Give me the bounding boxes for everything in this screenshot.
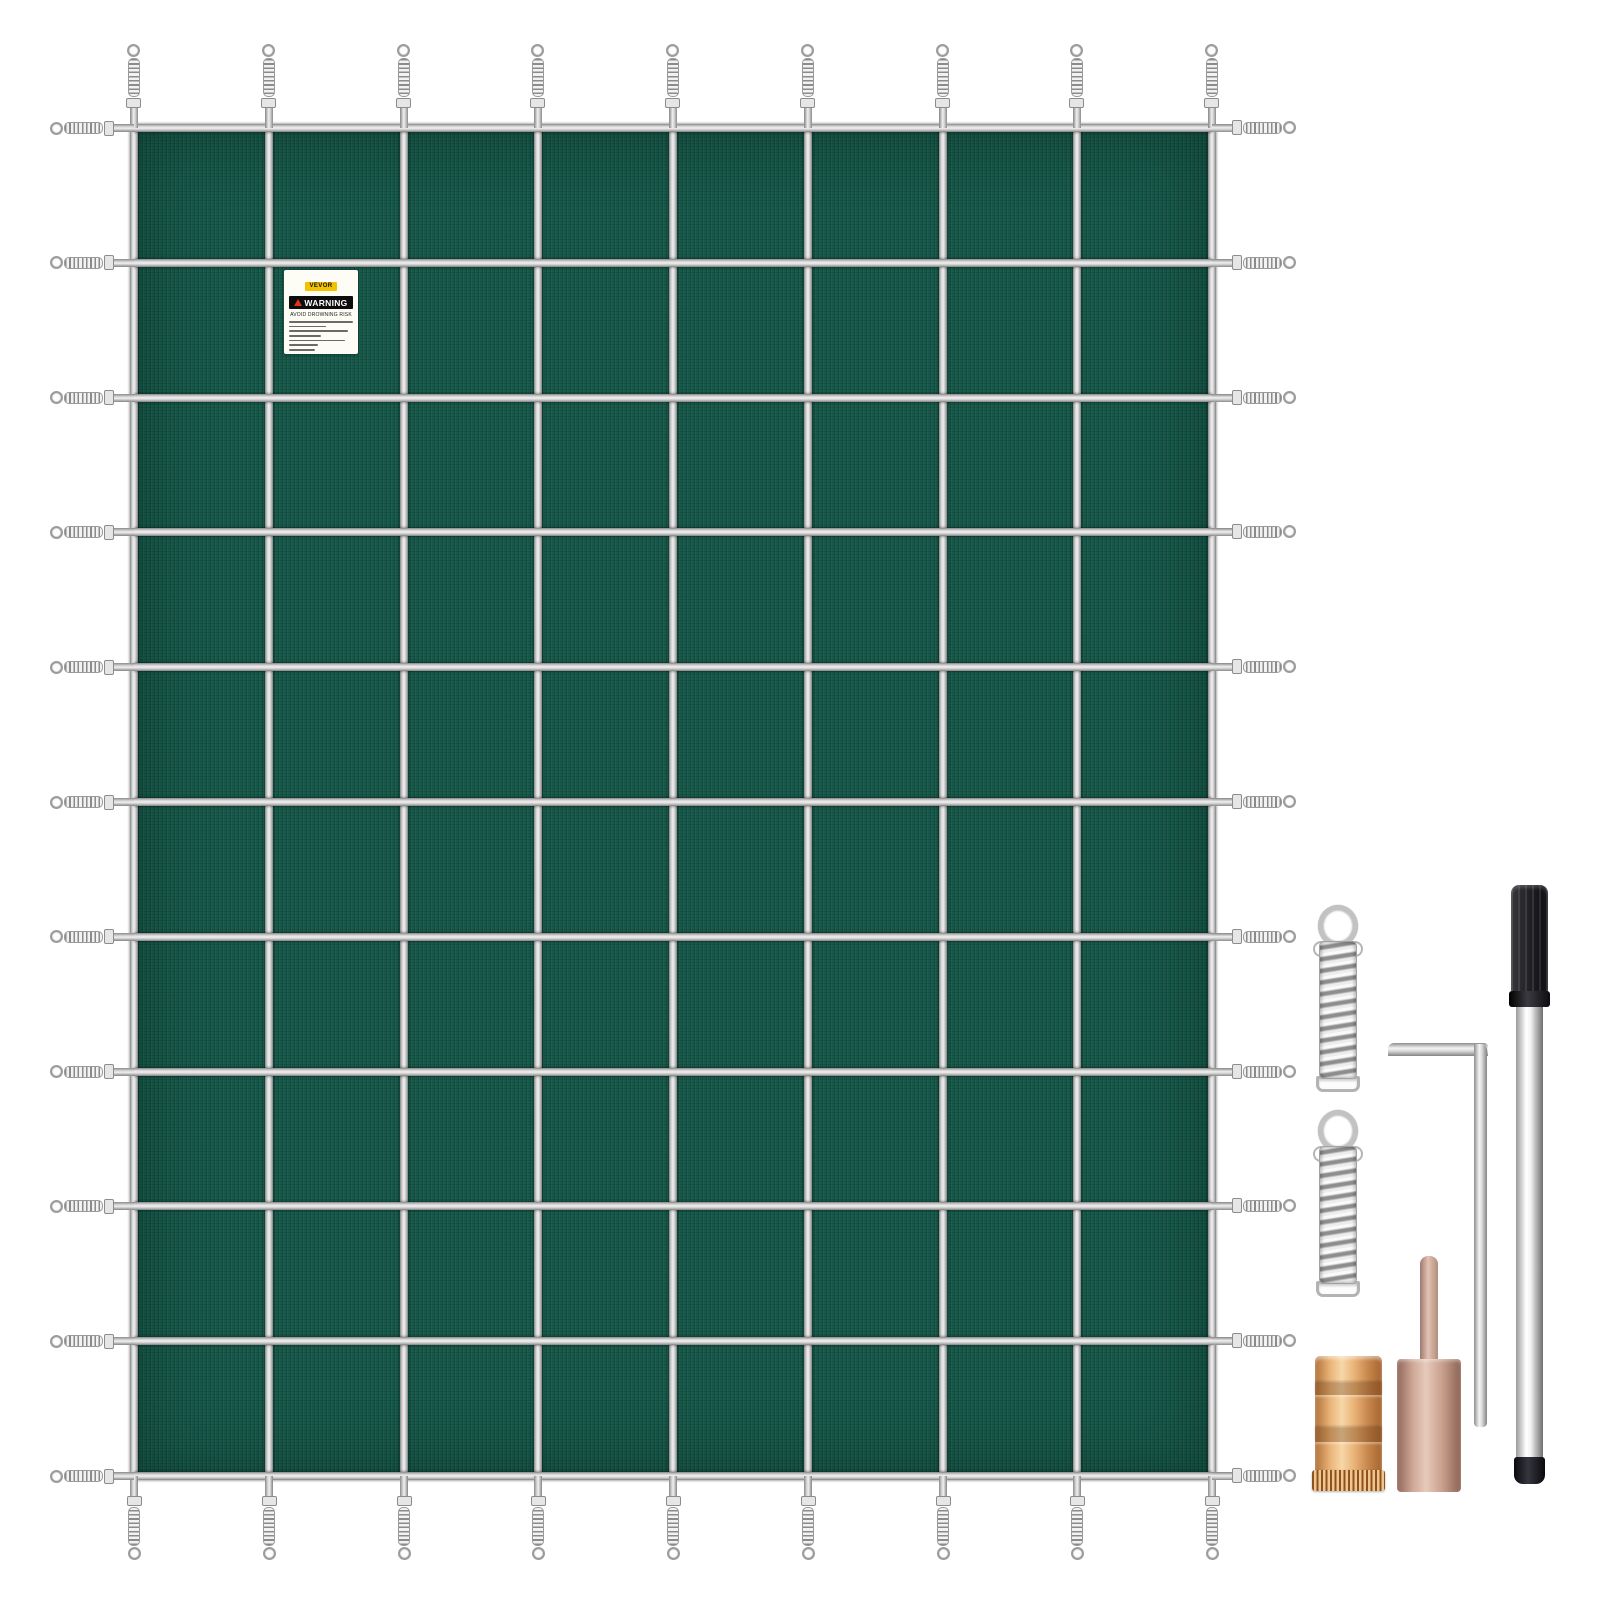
copper-anchor-pin	[1420, 1256, 1438, 1362]
spring-buckle	[1205, 1496, 1220, 1506]
spring-coil	[1319, 1146, 1357, 1284]
warning-triangle-icon	[294, 299, 302, 306]
spring-buckle	[1232, 255, 1242, 270]
spring-buckle	[1232, 1199, 1242, 1214]
spring-coil	[1243, 1470, 1282, 1482]
spring-coil	[1243, 526, 1282, 538]
strap-stub	[265, 1476, 273, 1496]
spring-coil	[1071, 1507, 1083, 1546]
strap-stub	[1073, 1476, 1081, 1496]
edge-spring	[666, 1476, 680, 1560]
installation-rod-collar	[1509, 991, 1550, 1007]
spring-ring	[1283, 1065, 1296, 1078]
spring-ring	[1283, 930, 1296, 943]
strap-stub	[265, 108, 273, 128]
spring-ring	[1283, 661, 1296, 674]
spring-ring	[1283, 256, 1296, 269]
edge-spring	[1205, 1476, 1219, 1560]
spring-ring	[1283, 1200, 1296, 1213]
spring-ring	[801, 1547, 814, 1560]
spring-ring	[667, 44, 680, 57]
edge-spring	[127, 1476, 141, 1560]
spring-coil	[64, 1200, 103, 1212]
spring-ring	[50, 1335, 63, 1348]
spring-coil	[937, 1507, 949, 1546]
spring-buckle	[1070, 1496, 1085, 1506]
product-image: VEVOR WARNING AVOID DROWNING RISK	[0, 0, 1600, 1600]
spring-buckle	[1232, 525, 1242, 540]
spring-ring	[50, 1065, 63, 1078]
spring-buckle	[935, 98, 950, 108]
edge-spring	[50, 121, 134, 135]
strap-stub	[1212, 1202, 1232, 1210]
edge-spring	[936, 1476, 950, 1560]
warning-subheading: AVOID DROWNING RISK	[289, 312, 353, 318]
strap-horizontal	[134, 1202, 1212, 1210]
label-fine-print-line	[289, 349, 315, 351]
edge-spring	[1070, 1476, 1084, 1560]
spring-ring	[1206, 1547, 1219, 1560]
spring-coil	[64, 796, 103, 808]
edge-spring	[262, 44, 276, 128]
spring-coil	[263, 1507, 275, 1546]
spring-ring	[1071, 44, 1084, 57]
label-fine-print-line	[289, 330, 348, 332]
edge-spring	[50, 1334, 134, 1348]
strap-stub	[534, 108, 542, 128]
spring-coil	[64, 122, 103, 134]
edge-spring	[50, 660, 134, 674]
spring-coil	[1243, 122, 1282, 134]
label-fine-print-line	[289, 335, 321, 337]
spring-coil	[937, 58, 949, 97]
spring-coil	[1206, 58, 1218, 97]
strap-horizontal	[134, 394, 1212, 402]
spring-coil	[802, 1507, 814, 1546]
strap-stub	[1212, 528, 1232, 536]
spring-coil	[64, 931, 103, 943]
edge-spring	[1212, 121, 1296, 135]
strap-stub	[114, 663, 134, 671]
spring-coil	[64, 257, 103, 269]
spring-coil	[263, 58, 275, 97]
strap-horizontal	[134, 528, 1212, 536]
spring-ring	[1283, 122, 1296, 135]
edge-spring	[531, 44, 545, 128]
label-fine-print-line	[289, 326, 326, 328]
spring-buckle	[666, 1496, 681, 1506]
spring-buckle	[1232, 929, 1242, 944]
strap-horizontal	[134, 663, 1212, 671]
spring-buckle	[1070, 98, 1085, 108]
spring-coil	[1243, 257, 1282, 269]
spring-buckle	[104, 1469, 114, 1484]
spring-buckle	[104, 390, 114, 405]
spring-ring	[50, 661, 63, 674]
edge-spring	[50, 391, 134, 405]
spring-ring	[1283, 391, 1296, 404]
spring-buckle	[104, 1199, 114, 1214]
strap-stub	[1212, 1337, 1232, 1345]
strap-stub	[114, 1472, 134, 1480]
spring-ring	[1071, 1547, 1084, 1560]
strap-stub	[1212, 933, 1232, 941]
spring-ring	[397, 1547, 410, 1560]
spring-buckle	[104, 660, 114, 675]
strap-stub	[1073, 108, 1081, 128]
edge-spring	[262, 1476, 276, 1560]
strap-stub	[114, 528, 134, 536]
strap-stub	[114, 1202, 134, 1210]
spring-coil	[1243, 931, 1282, 943]
spring-buckle	[800, 1496, 815, 1506]
edge-spring	[50, 1199, 134, 1213]
strap-stub	[669, 1476, 677, 1496]
edge-spring	[397, 44, 411, 128]
strap-horizontal	[134, 1068, 1212, 1076]
edge-spring	[1212, 660, 1296, 674]
spring-ring	[128, 44, 141, 57]
strap-stub	[804, 1476, 812, 1496]
edge-spring	[801, 44, 815, 128]
spring-buckle	[1205, 98, 1220, 108]
spring-ring	[50, 796, 63, 809]
spring-coil	[667, 58, 679, 97]
warning-heading: WARNING	[289, 296, 353, 309]
spring-coil	[1243, 796, 1282, 808]
spring-ring	[1283, 1335, 1296, 1348]
edge-spring	[1070, 44, 1084, 128]
spring-coil	[64, 1066, 103, 1078]
edge-spring	[1212, 391, 1296, 405]
spring-buckle	[1232, 390, 1242, 405]
brass-anchor-groove	[1315, 1383, 1382, 1395]
warning-heading-text: WARNING	[304, 298, 347, 308]
strap-stub	[114, 124, 134, 132]
tension-spring-accessory-2	[1314, 1110, 1362, 1297]
spring-ring	[1283, 796, 1296, 809]
edge-spring	[50, 930, 134, 944]
spring-ring	[128, 1547, 141, 1560]
spring-coil	[667, 1507, 679, 1546]
edge-spring	[1212, 795, 1296, 809]
spring-buckle	[104, 255, 114, 270]
spring-coil	[64, 1335, 103, 1347]
spring-buckle	[1232, 660, 1242, 675]
spring-buckle	[396, 98, 411, 108]
spring-coil	[64, 526, 103, 538]
edge-spring	[1212, 525, 1296, 539]
spring-coil	[128, 1507, 140, 1546]
spring-buckle	[666, 98, 681, 108]
spring-buckle	[104, 1064, 114, 1079]
strap-stub	[1212, 259, 1232, 267]
spring-coil	[398, 58, 410, 97]
spring-coil	[802, 58, 814, 97]
spring-ring	[801, 44, 814, 57]
spring-coil	[1206, 1507, 1218, 1546]
spring-ring	[262, 1547, 275, 1560]
spring-coil	[398, 1507, 410, 1546]
strap-stub	[1212, 663, 1232, 671]
spring-buckle	[261, 98, 276, 108]
edge-spring	[1212, 1065, 1296, 1079]
edge-spring	[127, 44, 141, 128]
spring-ring	[50, 1470, 63, 1483]
strap-stub	[939, 108, 947, 128]
spring-ring	[936, 1547, 949, 1560]
spring-coil	[64, 1470, 103, 1482]
edge-spring	[801, 1476, 815, 1560]
strap-stub	[114, 1337, 134, 1345]
edge-spring	[1212, 1199, 1296, 1213]
spring-coil	[1071, 58, 1083, 97]
spring-buckle	[104, 121, 114, 136]
spring-ring	[50, 930, 63, 943]
strap-stub	[669, 108, 677, 128]
spring-coil	[128, 58, 140, 97]
edge-spring	[50, 795, 134, 809]
installation-rod-handle	[1511, 885, 1548, 993]
spring-ring	[667, 1547, 680, 1560]
label-fine-print-line	[289, 344, 318, 346]
edge-spring	[50, 1065, 134, 1079]
spring-buckle	[800, 98, 815, 108]
spring-ring	[532, 1547, 545, 1560]
strap-stub	[400, 1476, 408, 1496]
edge-spring	[50, 1469, 134, 1483]
strap-horizontal	[134, 798, 1212, 806]
spring-buckle	[127, 1496, 142, 1506]
edge-spring	[1212, 930, 1296, 944]
strap-horizontal	[134, 1337, 1212, 1345]
spring-buckle	[104, 929, 114, 944]
strap-stub	[1212, 1068, 1232, 1076]
strap-stub	[114, 933, 134, 941]
spring-coil	[1319, 941, 1357, 1079]
spring-ring	[1283, 1470, 1296, 1483]
edge-spring	[1212, 256, 1296, 270]
spring-buckle	[127, 98, 142, 108]
spring-ring	[50, 526, 63, 539]
spring-ring	[1283, 526, 1296, 539]
spring-coil	[64, 661, 103, 673]
installation-rod-shaft	[1516, 1005, 1543, 1459]
spring-buckle	[104, 1334, 114, 1349]
hex-key-shaft	[1474, 1044, 1487, 1427]
brass-anchor-knurl	[1312, 1470, 1385, 1491]
spring-buckle	[1232, 1064, 1242, 1079]
spring-buckle	[531, 1496, 546, 1506]
spring-buckle	[261, 1496, 276, 1506]
label-fine-print-line	[289, 321, 353, 323]
spring-coil	[1243, 1335, 1282, 1347]
spring-buckle	[935, 1496, 950, 1506]
spring-buckle	[531, 98, 546, 108]
spring-coil	[532, 58, 544, 97]
edge-spring	[50, 256, 134, 270]
spring-coil	[1243, 1200, 1282, 1212]
spring-ring	[50, 391, 63, 404]
strap-stub	[114, 798, 134, 806]
strap-stub	[804, 108, 812, 128]
strap-stub	[114, 394, 134, 402]
tension-spring-accessory-1	[1314, 905, 1362, 1092]
spring-buckle	[1232, 795, 1242, 810]
spring-buckle	[1232, 1469, 1242, 1484]
strap-stub	[1212, 394, 1232, 402]
spring-buckle	[1232, 121, 1242, 136]
brand-badge: VEVOR	[305, 282, 336, 291]
edge-spring	[936, 44, 950, 128]
brass-anchor-groove	[1315, 1428, 1382, 1442]
edge-spring	[666, 44, 680, 128]
edge-spring	[397, 1476, 411, 1560]
strap-stub	[1212, 124, 1232, 132]
strap-stub	[1212, 1472, 1232, 1480]
copper-anchor	[1397, 1359, 1461, 1492]
installation-rod-tip	[1514, 1457, 1545, 1484]
strap-horizontal	[134, 933, 1212, 941]
warning-fine-print	[289, 321, 353, 351]
spring-buckle	[104, 795, 114, 810]
strap-stub	[1212, 798, 1232, 806]
spring-buckle	[104, 525, 114, 540]
spring-ring	[1206, 44, 1219, 57]
spring-coil	[1243, 392, 1282, 404]
spring-coil	[1243, 661, 1282, 673]
hex-key-arm	[1388, 1043, 1488, 1056]
strap-stub	[114, 259, 134, 267]
spring-buckle	[1232, 1334, 1242, 1349]
brass-anchor	[1315, 1356, 1382, 1472]
strap-stub	[400, 108, 408, 128]
spring-ring	[50, 122, 63, 135]
edge-spring	[50, 525, 134, 539]
strap-stub	[114, 1068, 134, 1076]
spring-ring	[397, 44, 410, 57]
edge-spring	[1212, 1334, 1296, 1348]
warning-label: VEVOR WARNING AVOID DROWNING RISK	[284, 270, 358, 354]
spring-buckle	[396, 1496, 411, 1506]
label-fine-print-line	[289, 340, 345, 342]
spring-ring	[532, 44, 545, 57]
strap-stub	[534, 1476, 542, 1496]
edge-spring	[1212, 1469, 1296, 1483]
spring-coil	[64, 392, 103, 404]
edge-spring	[531, 1476, 545, 1560]
spring-coil	[532, 1507, 544, 1546]
edge-spring	[1205, 44, 1219, 128]
spring-ring	[50, 256, 63, 269]
spring-ring	[936, 44, 949, 57]
strap-horizontal	[134, 259, 1212, 267]
spring-coil	[1243, 1066, 1282, 1078]
spring-ring	[50, 1200, 63, 1213]
spring-ring	[262, 44, 275, 57]
strap-stub	[939, 1476, 947, 1496]
